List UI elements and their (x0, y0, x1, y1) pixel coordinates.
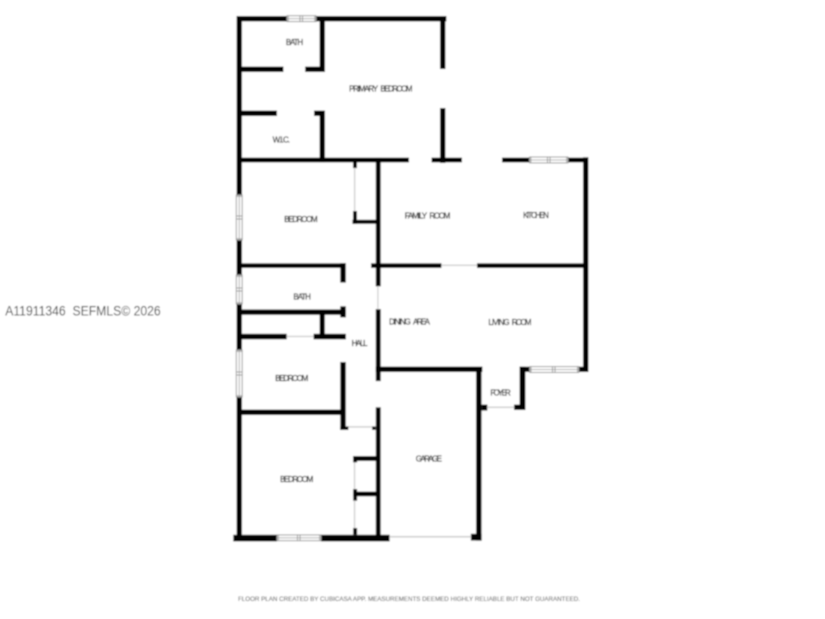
svg-text:BEDROOM: BEDROOM (280, 475, 314, 484)
svg-text:ROOM: ROOM (512, 318, 532, 327)
svg-text:AREA: AREA (413, 318, 431, 327)
svg-text:A11911346 SEFMLS© 2026: A11911346 SEFMLS© 2026 (5, 304, 161, 319)
svg-text:GARAGE: GARAGE (416, 455, 442, 464)
svg-text:BATH: BATH (286, 38, 304, 47)
svg-text:HALL: HALL (352, 339, 369, 348)
svg-text:FAMILY: FAMILY (405, 212, 428, 221)
svg-text:BATH: BATH (293, 293, 311, 302)
svg-text:FOYER: FOYER (490, 388, 511, 397)
svg-text:PRIMARY: PRIMARY (349, 84, 379, 93)
svg-text:LIVING: LIVING (488, 318, 509, 327)
svg-text:W.I.C.: W.I.C. (273, 135, 291, 144)
svg-text:FLOOR PLAN CREATED BY CUBICASA: FLOOR PLAN CREATED BY CUBICASA APP. MEAS… (238, 596, 580, 603)
svg-text:BEDROOM: BEDROOM (275, 374, 308, 383)
svg-text:KITCHEN: KITCHEN (523, 211, 549, 220)
svg-text:ROOM: ROOM (429, 212, 450, 221)
svg-text:BEDROOM: BEDROOM (284, 215, 318, 224)
svg-text:BEDROOM: BEDROOM (380, 84, 412, 93)
svg-text:DINING: DINING (389, 318, 411, 327)
